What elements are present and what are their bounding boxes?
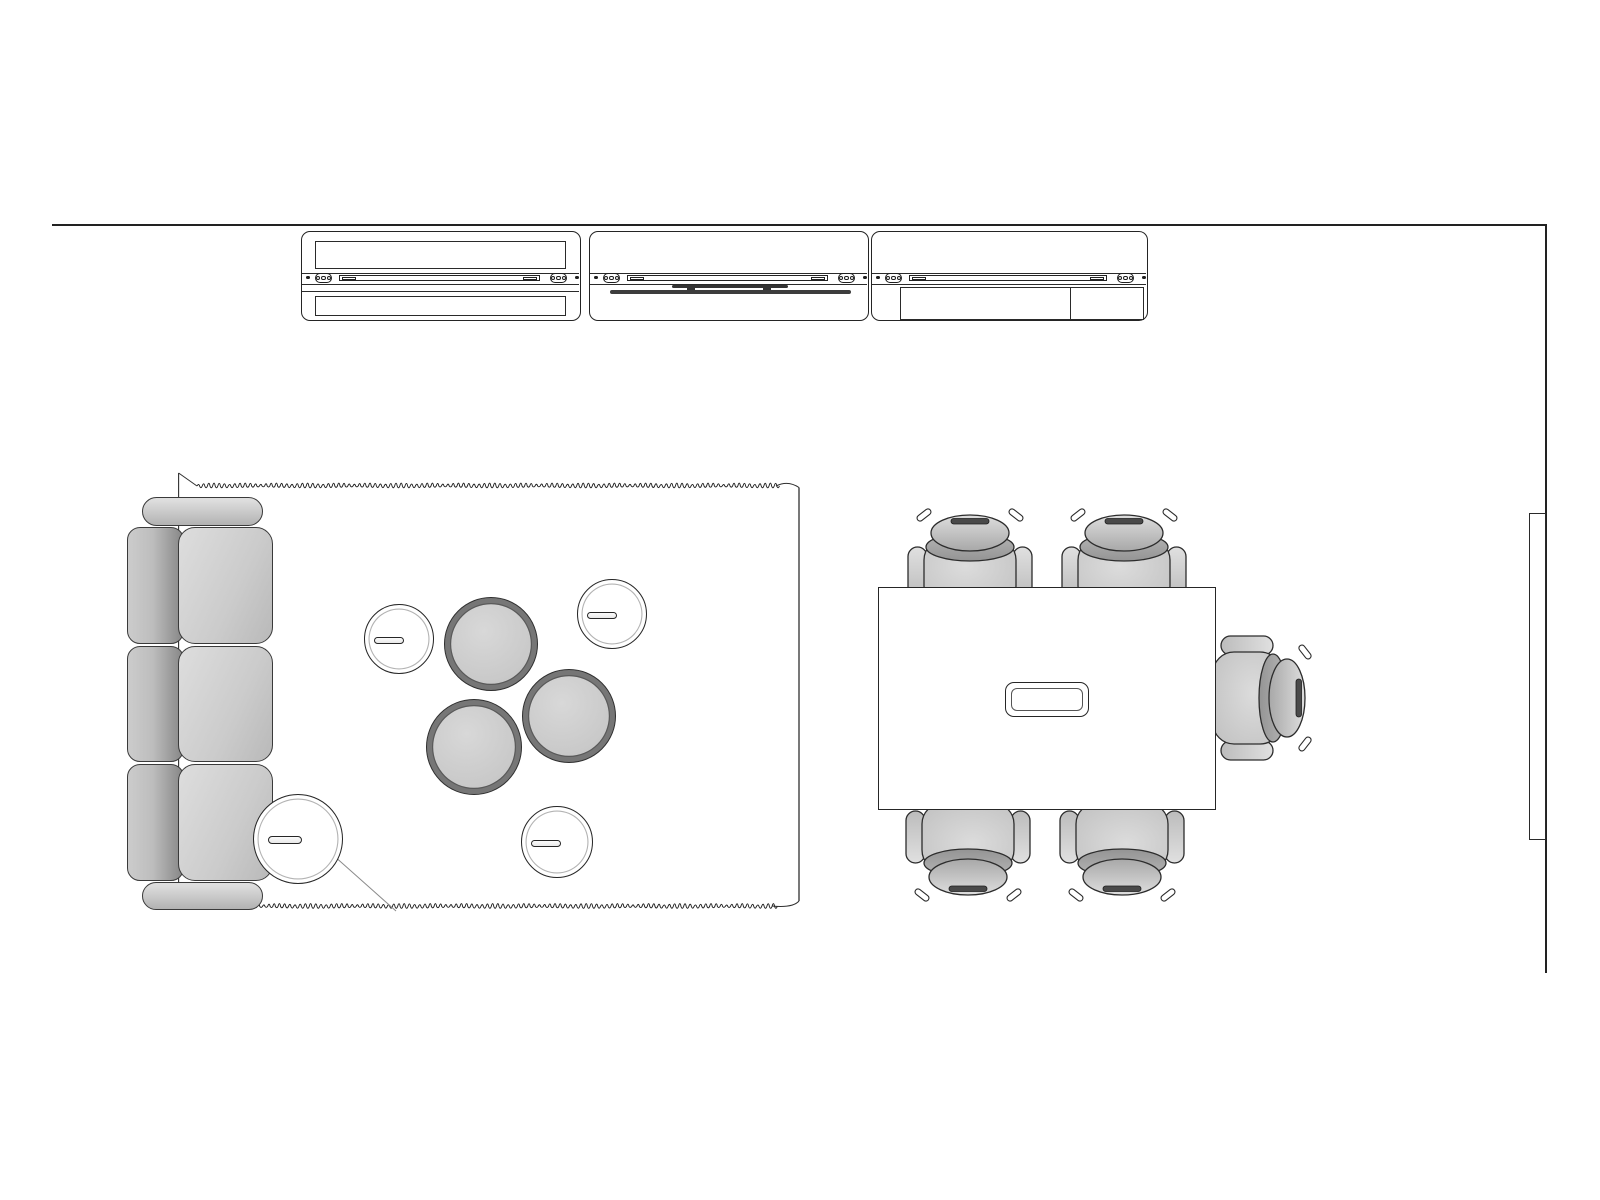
roller-glyph — [1117, 273, 1134, 283]
caster-hook — [914, 888, 930, 903]
wall-panel — [1529, 513, 1546, 840]
sofa-seat-cushion — [178, 527, 273, 644]
rail-track — [627, 275, 828, 282]
sofa-arm-top — [142, 497, 263, 526]
storage-unit-1 — [301, 231, 581, 321]
rail-dot — [863, 276, 867, 280]
headrest-slot — [1296, 679, 1302, 717]
floor-plan — [0, 0, 1600, 1200]
storage-top-shelf — [315, 241, 566, 270]
side-table-slot — [374, 637, 404, 644]
roller-glyph — [603, 273, 620, 283]
table-grommet-outer — [1005, 682, 1089, 717]
side-table — [577, 579, 647, 649]
conference-chair-3 — [905, 801, 1031, 905]
roller-glyph — [550, 273, 567, 283]
side-table — [253, 794, 343, 884]
caster-hook — [1160, 888, 1176, 903]
chair-drawing — [1059, 801, 1185, 905]
conference-chair-5 — [1211, 635, 1315, 761]
sofa-backrest-section — [127, 646, 184, 762]
side-table-slot — [531, 840, 561, 847]
conference-table — [878, 587, 1216, 810]
storage-bottom-shelf — [315, 296, 566, 316]
track-cap — [523, 277, 537, 281]
top-wall — [52, 224, 1547, 226]
rail-track — [909, 275, 1107, 282]
ottoman — [444, 597, 538, 691]
rail-top-line — [590, 273, 867, 274]
conference-chair-4 — [1059, 801, 1185, 905]
rail-dot — [306, 276, 310, 280]
rail-bottom-line — [872, 284, 1146, 285]
caster-hook — [1008, 508, 1024, 523]
storage-bottom-compartment — [900, 287, 1144, 320]
rail-track — [339, 275, 540, 282]
rail-dot — [594, 276, 598, 280]
caster-hook — [1298, 736, 1313, 752]
track-cap — [342, 277, 356, 281]
sofa-seat-cushion — [178, 646, 273, 762]
rail-dot — [575, 276, 579, 280]
roller-glyph — [885, 273, 902, 283]
media-screen-bar — [610, 290, 851, 295]
headrest-slot — [1103, 886, 1141, 892]
chair-drawing — [905, 801, 1031, 905]
track-cap — [1090, 277, 1104, 281]
side-table-slot — [587, 612, 617, 619]
ottoman — [522, 669, 616, 763]
rail-dot — [876, 276, 880, 280]
sofa-arm-bottom — [142, 882, 263, 910]
rail-top-line — [302, 273, 579, 274]
headrest-slot — [951, 519, 989, 525]
headrest-slot — [1105, 519, 1143, 525]
rail-top-line — [872, 273, 1146, 274]
roller-glyph — [838, 273, 855, 283]
side-table — [364, 604, 434, 674]
sofa-backrest-section — [127, 764, 184, 881]
rail-dot — [1142, 276, 1146, 280]
headrest-slot — [949, 886, 987, 892]
caster-hook — [1070, 508, 1086, 523]
compartment-divider — [1070, 288, 1071, 319]
shelf-edge-line — [302, 291, 579, 292]
rail-bottom-line — [302, 284, 579, 285]
table-grommet-inner — [1011, 688, 1083, 711]
roller-glyph — [315, 273, 332, 283]
side-table-slot — [268, 836, 302, 844]
side-table — [521, 806, 593, 878]
caster-hook — [1298, 644, 1313, 660]
storage-unit-2 — [589, 231, 869, 321]
rug-corner-top-left — [179, 473, 197, 486]
sofa-backrest-section — [127, 527, 184, 644]
track-cap — [630, 277, 644, 281]
storage-unit-3 — [871, 231, 1148, 321]
caster-hook — [1068, 888, 1084, 903]
caster-hook — [916, 508, 932, 523]
caster-hook — [1162, 508, 1178, 523]
track-cap — [811, 277, 825, 281]
ottoman — [426, 699, 522, 795]
caster-hook — [1006, 888, 1022, 903]
track-cap — [912, 277, 926, 281]
chair-drawing — [1211, 635, 1315, 761]
